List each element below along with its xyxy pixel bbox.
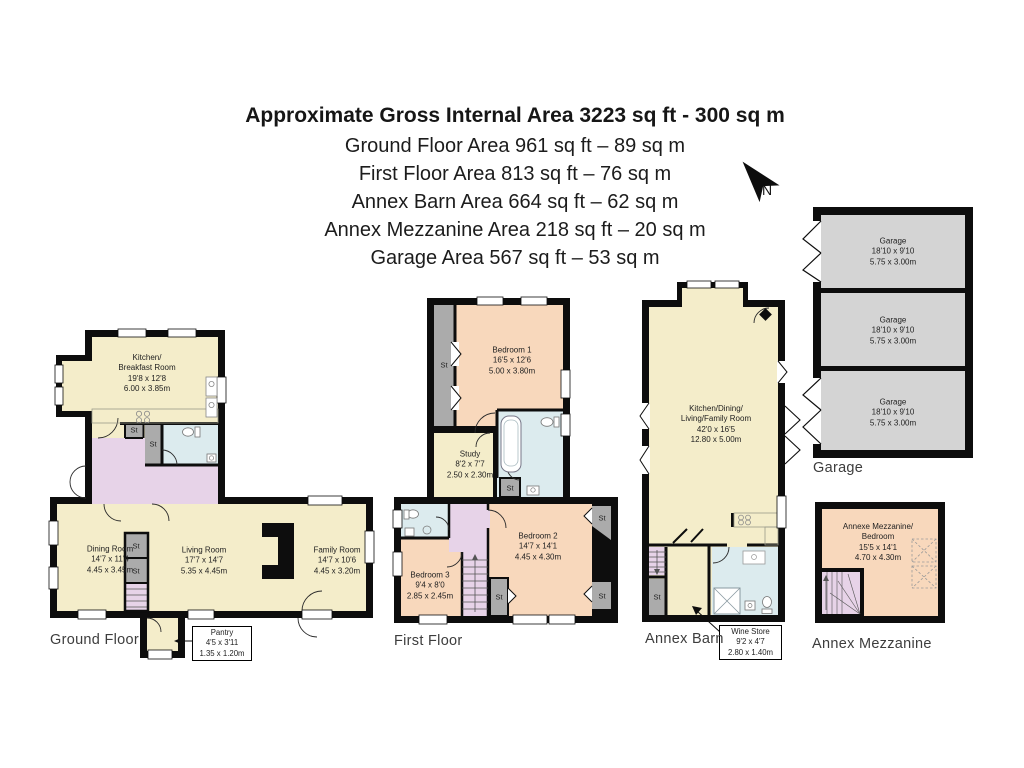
ground-floor-plan <box>40 325 390 665</box>
room-main-band <box>57 504 366 611</box>
pantry-label-box: Pantry 4'5 x 3'11 1.35 x 1.20m <box>192 626 252 661</box>
room-pantry <box>147 618 178 651</box>
room-storage-mid <box>490 578 508 616</box>
caption-annex-mezzanine: Annex Mezzanine <box>812 636 932 652</box>
room-garage-bay2 <box>821 293 965 366</box>
room-storage-bath <box>500 478 520 497</box>
room-storage-2 <box>145 423 162 465</box>
room-storage-1 <box>125 423 143 438</box>
room-study <box>434 433 493 497</box>
caption-first-floor: First Floor <box>394 633 463 649</box>
room-storage-right-bottom <box>592 582 611 609</box>
caption-ground-floor: Ground Floor <box>50 632 139 648</box>
area-line-ground: Ground Floor Area 961 sq ft – 89 sq m <box>115 132 915 160</box>
first-floor-plan <box>385 290 625 650</box>
storage-column <box>125 533 148 611</box>
north-label: N <box>762 182 772 198</box>
room-barn-storage <box>649 579 666 615</box>
wine-store-label-box: Wine Store 9'2 x 4'7 2.80 x 1.40m <box>719 625 782 660</box>
north-arrow-icon <box>728 150 788 210</box>
annex-barn-plan <box>635 270 805 660</box>
mezzanine-stairs <box>818 568 864 618</box>
page-title: Approximate Gross Internal Area 3223 sq … <box>115 103 915 129</box>
barn-bay <box>682 288 743 310</box>
floorplan-canvas: Approximate Gross Internal Area 3223 sq … <box>0 0 1024 768</box>
room-barn-main <box>649 307 778 545</box>
room-garage-bay3 <box>821 371 965 450</box>
area-line-first: First Floor Area 813 sq ft – 76 sq m <box>115 160 915 188</box>
caption-garage: Garage <box>813 460 863 476</box>
caption-annex-barn: Annex Barn <box>645 631 724 647</box>
room-bedroom1 <box>455 305 563 426</box>
room-garage-bay1 <box>821 215 965 288</box>
garage-plan <box>790 195 1000 485</box>
